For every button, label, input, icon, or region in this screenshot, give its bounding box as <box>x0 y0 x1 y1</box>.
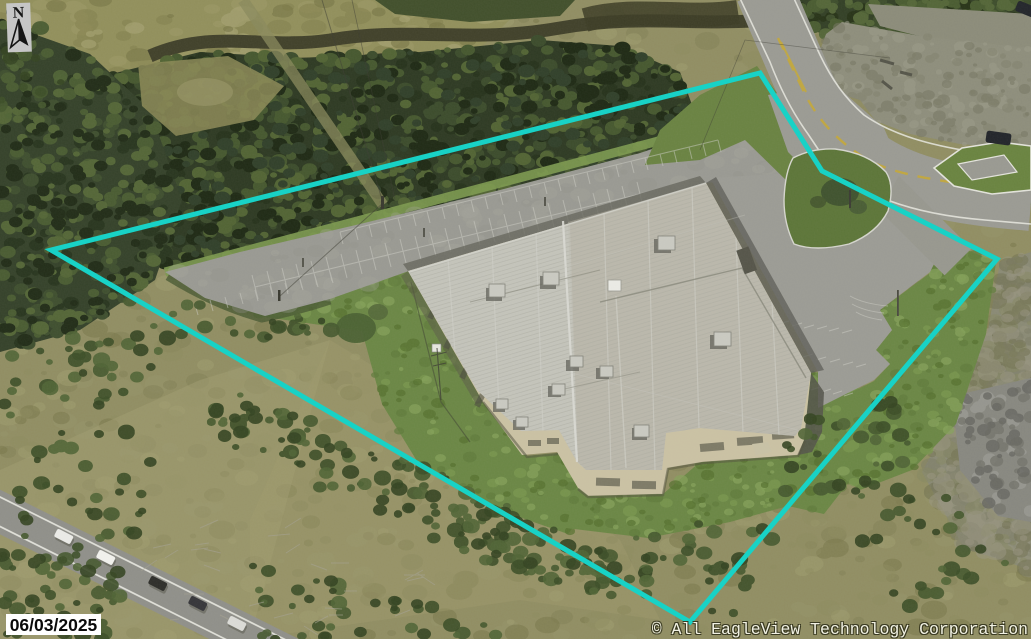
svg-text:06/03/2025: 06/03/2025 <box>10 615 98 635</box>
svg-text:© All EagleView Technology Cor: © All EagleView Technology Corporation <box>652 620 1028 639</box>
